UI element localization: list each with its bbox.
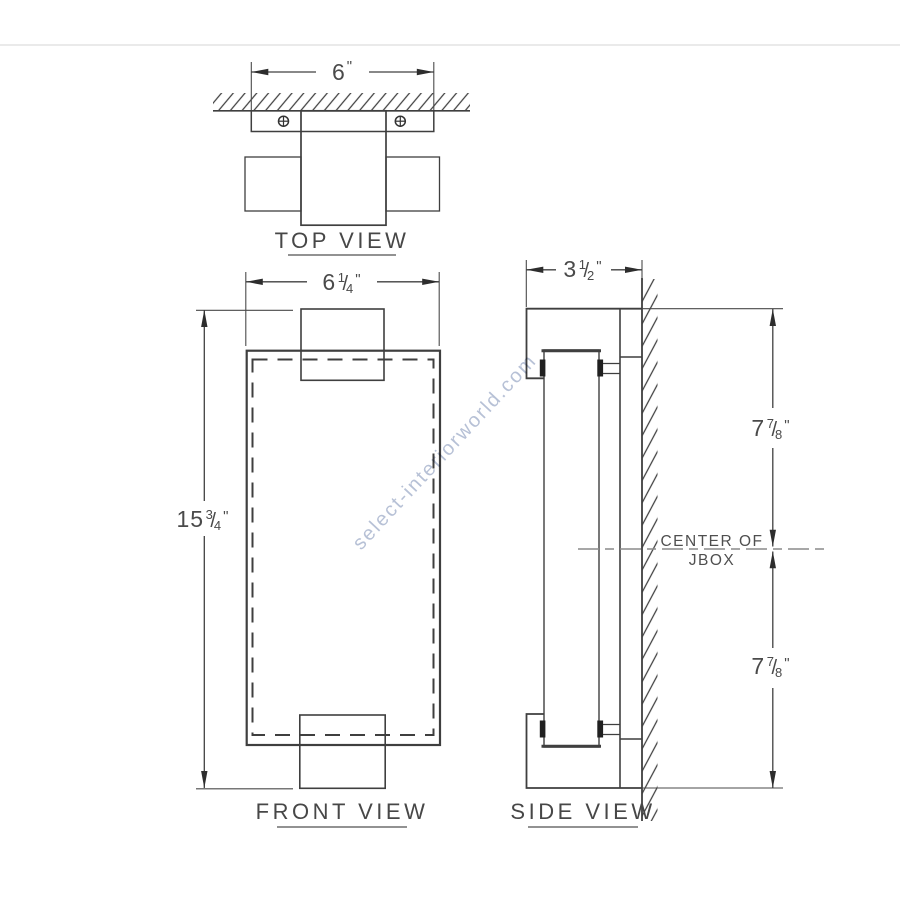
screw-icon [279,116,289,126]
dimension-front-width: 61/4" [246,269,439,346]
glass-clip [597,721,603,738]
top-view-glass-left [245,157,301,211]
front-view-glass-body [247,351,440,745]
dimension-text-front-height: 153/4" [177,506,230,533]
screw-icon [395,116,405,126]
glass-clip [540,360,546,377]
top-view-label: TOP VIEW [275,228,410,253]
front-view-label: FRONT VIEW [256,799,429,824]
side-view: 31/2" 77/8" 77/8" CENTER OF JBOX SIDE VI… [510,256,830,827]
top-view: 6" TOP VIEW [213,58,470,255]
front-view-top-block [301,309,384,380]
wall-sconce-dimension-drawing: 6" TOP VIEW 61/4" 15 [0,0,900,900]
jbox-annotation-line2: JBOX [689,552,735,569]
side-view-wall-hatch [642,279,658,821]
side-view-label: SIDE VIEW [510,799,655,824]
technical-drawing-page: 6" TOP VIEW 61/4" 15 [0,0,900,900]
dimension-text-side-lower: 77/8" [751,653,790,680]
dimension-text-top-width: 6" [332,58,353,85]
dimension-text-side-upper: 77/8" [751,415,790,442]
front-view: 61/4" 153/4" FRONT VIEW [177,269,440,827]
jbox-annotation-line1: CENTER OF [660,533,763,550]
glass-clip [540,721,546,738]
front-view-bottom-block [300,715,385,788]
dimension-text-front-width: 61/4" [322,269,361,296]
dimension-text-side-depth: 31/2" [563,256,602,283]
top-view-glass-right [386,157,440,211]
glass-clip [597,360,603,377]
dimension-side-depth: 31/2" [526,256,642,307]
front-view-inner-dashed-frame [253,360,434,736]
dimension-front-height: 153/4" [177,310,293,789]
top-view-housing [301,111,386,225]
